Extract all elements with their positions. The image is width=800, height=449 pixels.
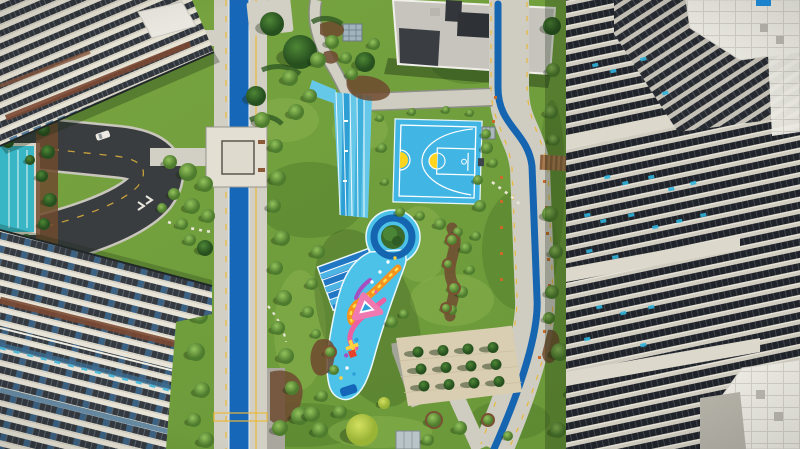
aerial-photo-canvas bbox=[0, 0, 800, 449]
photo-vignette bbox=[0, 0, 800, 449]
aerial-photo bbox=[0, 0, 800, 449]
